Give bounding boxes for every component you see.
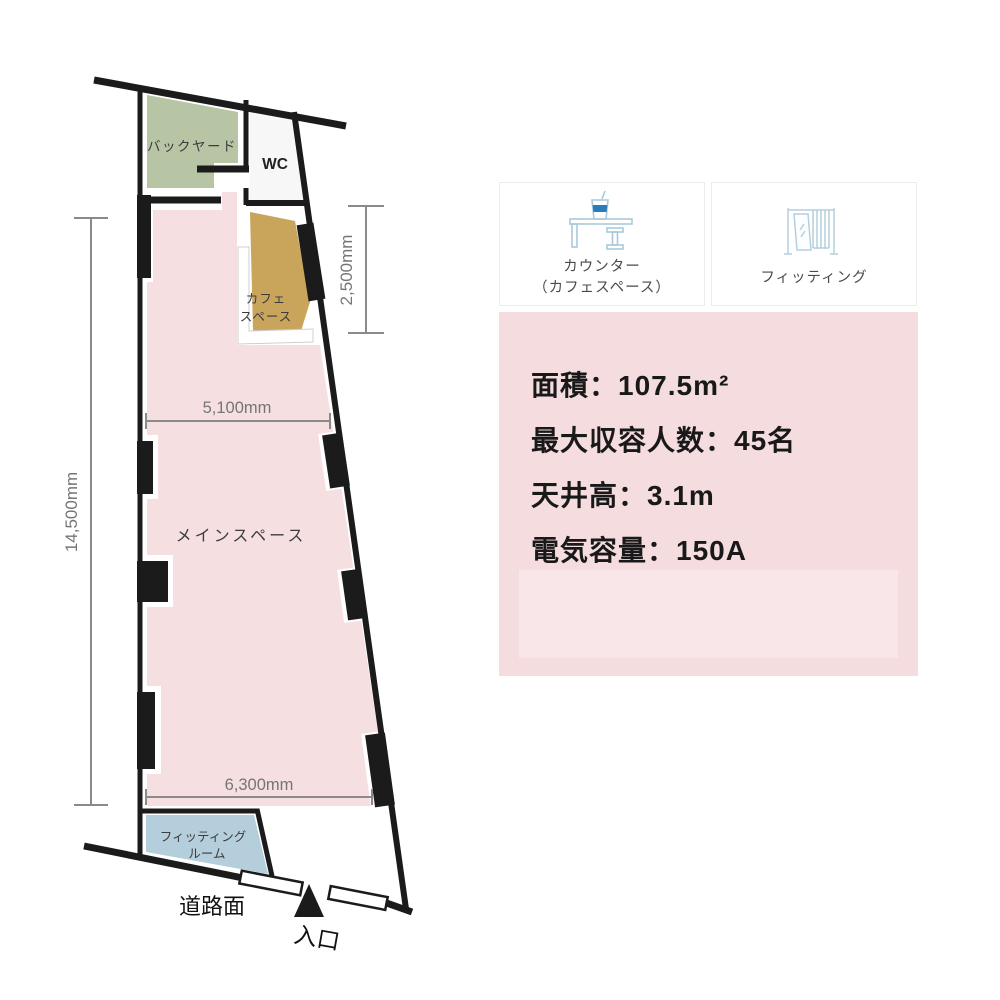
details-panel: カウンター （カフェスペース）: [499, 182, 918, 676]
fitting-card-label: フィッティング: [760, 268, 867, 289]
feature-cards: カウンター （カフェスペース）: [499, 182, 918, 306]
door-right: [328, 886, 387, 910]
feature-card-counter: カウンター （カフェスペース）: [499, 182, 705, 306]
fitting-room-label-line1: フィッティング: [160, 830, 247, 844]
counter-card-label-line2: （カフェスペース）: [533, 278, 671, 299]
page: 14,500mm 2,500mm 5,100mm 6,300mm バックヤード …: [0, 0, 1000, 1000]
fitting-icon: [778, 200, 850, 262]
spec-capacity: 最大収容人数：45名: [531, 413, 918, 468]
feature-card-fitting: フィッティング: [711, 182, 917, 306]
main-space-label: メインスペース: [176, 528, 307, 545]
dimension-top-right-label: 2,500mm: [337, 235, 356, 306]
entrance-label: 入口: [292, 921, 342, 955]
counter-icon: [566, 189, 638, 251]
counter-card-label-line1: カウンター: [533, 257, 671, 278]
dimension-bottom-label: 6,300mm: [225, 776, 294, 794]
cafe-label-line1: カフェ: [246, 292, 287, 306]
spec-ceiling-height: 天井高：3.1m: [531, 468, 918, 523]
backyard-label: バックヤード: [147, 139, 237, 154]
floor-plan: 14,500mm 2,500mm 5,100mm 6,300mm バックヤード …: [0, 0, 470, 1000]
specs-panel: 面積：107.5m² 最大収容人数：45名 天井高：3.1m 電気容量：150A: [499, 312, 918, 676]
fitting-room-label-line2: ルーム: [188, 847, 225, 861]
cafe-label-line2: スペース: [240, 310, 293, 324]
dimension-middle-label: 5,100mm: [203, 399, 272, 417]
road-label: 道路面: [179, 894, 245, 919]
dimension-left-label: 14,500mm: [62, 472, 81, 552]
specs-inner-panel: [519, 570, 898, 658]
wc-label: WC: [262, 156, 288, 173]
spec-area: 面積：107.5m²: [531, 358, 918, 413]
